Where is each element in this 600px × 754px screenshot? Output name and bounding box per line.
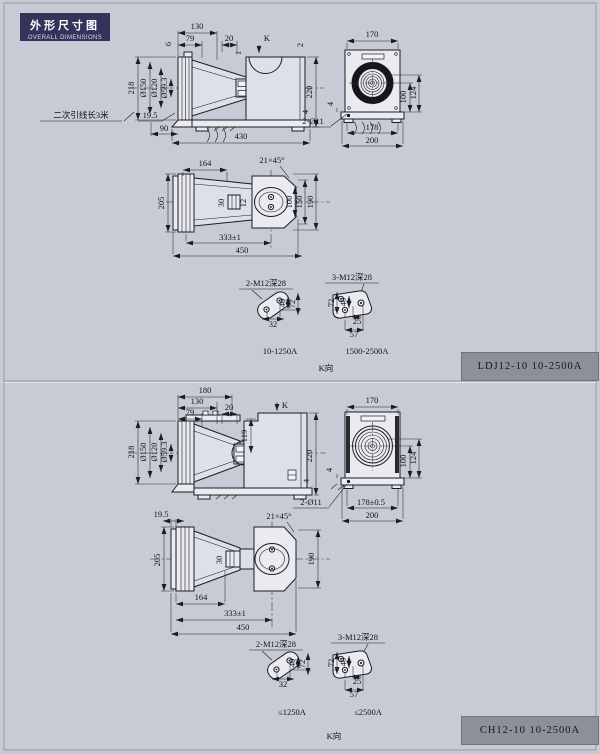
dim-dia59: Ø59.3 bbox=[159, 77, 169, 98]
dim-200: 200 bbox=[366, 510, 379, 520]
dim-150: 150 bbox=[294, 196, 304, 209]
panel1: 130 79 6 20 K 2 1 218 Ø150 Ø120 Ø59.3 22… bbox=[40, 21, 422, 373]
dim-57: 57 bbox=[350, 689, 359, 699]
dim-190: 190 bbox=[305, 196, 315, 209]
dim-124: 124 bbox=[408, 451, 418, 465]
chamfer-note: 21×45° bbox=[266, 511, 291, 521]
dim-25: 25 bbox=[353, 316, 362, 326]
dim-218: 218 bbox=[126, 446, 136, 459]
dim-4: 4 bbox=[325, 101, 335, 106]
dim-25: 25 bbox=[353, 676, 362, 686]
dim-90: 90 bbox=[160, 123, 169, 133]
k-view-caption: K向 bbox=[319, 363, 334, 373]
dim-19-5: 19.5 bbox=[154, 509, 169, 519]
dim-180: 180 bbox=[199, 385, 212, 395]
dim-72: 72 bbox=[326, 299, 336, 308]
dim-dia150: Ø150 bbox=[138, 443, 148, 462]
dim-178: 178 bbox=[366, 122, 379, 132]
dim-220: 220 bbox=[304, 450, 314, 463]
bolt-detail-title: 2-M12深28 bbox=[256, 639, 296, 649]
dim-57: 57 bbox=[350, 329, 359, 339]
bolt-detail-title: 3-M12深28 bbox=[338, 632, 378, 642]
dim-218: 218 bbox=[126, 82, 136, 95]
dim-30: 30 bbox=[216, 199, 226, 208]
k-view-caption: K向 bbox=[327, 731, 342, 741]
dim-450: 450 bbox=[237, 622, 250, 632]
dim-100: 100 bbox=[284, 196, 294, 209]
range-label: ≤2500A bbox=[354, 707, 383, 717]
dim-6: 6 bbox=[163, 42, 173, 46]
dim-2: 2 bbox=[295, 43, 305, 47]
model-label-ldj12: LDJ12-10 10-2500A bbox=[461, 352, 599, 381]
side-rail bbox=[346, 416, 350, 473]
panel2: 180 130 79 20 K 119 218 Ø150 Ø120 Ø59.3 … bbox=[126, 385, 422, 741]
k-direction-label: K bbox=[264, 33, 271, 43]
model-label-ch12: CH12-10 10-2500A bbox=[461, 716, 599, 745]
dim-72: 72 bbox=[297, 660, 307, 669]
dim-164: 164 bbox=[199, 158, 213, 168]
p2-bolt-detail-2xM12: 2-M12深28 40 72 32 ≤1250A bbox=[249, 639, 311, 717]
dim-333: 333±1 bbox=[224, 608, 246, 618]
p1-k-view: 170 100 124 4 2-Ø11 178 200 bbox=[295, 29, 422, 146]
dim-dia150: Ø150 bbox=[138, 79, 148, 98]
chamfer-note: 21×45° bbox=[259, 155, 284, 165]
dim-dia59: Ø59.3 bbox=[159, 441, 169, 462]
dim-30: 30 bbox=[214, 556, 224, 565]
range-label: 10-1250A bbox=[263, 346, 298, 356]
drawing-sheet: 130 79 6 20 K 2 1 218 Ø150 Ø120 Ø59.3 22… bbox=[0, 0, 600, 754]
dim-72: 72 bbox=[326, 659, 336, 668]
p1-bolt-detail-3xM12: 3-M12深28 72 40 25 57 1500-2500A bbox=[325, 272, 389, 356]
dim-333: 333±1 bbox=[219, 232, 241, 242]
dim-4: 4 bbox=[324, 467, 334, 472]
mounting-hole bbox=[347, 480, 350, 483]
dim-190: 190 bbox=[306, 553, 316, 566]
p1-bolt-detail-2xM12: 2-M12深28 40 72 32 10-1250A bbox=[239, 278, 301, 356]
dim-430: 430 bbox=[235, 131, 248, 141]
bolt-detail-title: 2-M12深28 bbox=[246, 278, 286, 288]
dim-40: 40 bbox=[287, 659, 297, 668]
dim-12: 12 bbox=[238, 199, 248, 208]
title-chinese: 外形尺寸图 bbox=[20, 17, 110, 33]
dim-dia120: Ø120 bbox=[149, 443, 159, 462]
p2-bolt-detail-3xM12: 3-M12深28 72 40 25 57 ≤2500A bbox=[326, 632, 385, 717]
secondary-lead-note: 二次引线长3米 bbox=[53, 110, 109, 120]
dim-178: 178±0.5 bbox=[357, 497, 385, 507]
dim-100: 100 bbox=[398, 91, 408, 104]
dim-220: 220 bbox=[304, 86, 314, 99]
dim-1: 1 bbox=[233, 51, 243, 55]
dim-79: 79 bbox=[186, 407, 195, 417]
title-block: 外形尺寸图 OVERALL DIMENSIONS bbox=[20, 13, 110, 41]
range-label: 1500-2500A bbox=[346, 346, 390, 356]
range-label: ≤1250A bbox=[278, 707, 307, 717]
dim-450: 450 bbox=[236, 245, 249, 255]
dim-79: 79 bbox=[186, 33, 195, 43]
dim-130: 130 bbox=[191, 396, 204, 406]
dim-200: 200 bbox=[366, 135, 379, 145]
p2-front-view: 180 130 79 20 K 119 218 Ø150 Ø120 Ø59.3 … bbox=[126, 385, 326, 499]
dim-72: 72 bbox=[287, 300, 297, 309]
mounting-hole bbox=[347, 114, 350, 117]
dim-40: 40 bbox=[338, 658, 348, 667]
dim-164: 164 bbox=[195, 592, 209, 602]
dim-40: 40 bbox=[277, 299, 287, 308]
dim-170: 170 bbox=[366, 395, 379, 405]
k-direction-label: K bbox=[282, 400, 289, 410]
dim-119: 119 bbox=[239, 430, 249, 442]
dim-20: 20 bbox=[225, 402, 234, 412]
mounting-hole-label: 2-Ø11 bbox=[302, 116, 323, 126]
dim-19-5: 19.5 bbox=[143, 110, 158, 120]
dim-170: 170 bbox=[366, 29, 379, 39]
dim-130: 130 bbox=[191, 21, 204, 31]
dim-32: 32 bbox=[269, 319, 278, 329]
title-english: OVERALL DIMENSIONS bbox=[20, 35, 110, 41]
p2-plan-view: 19.5 21×45° 205 30 190 164 333±1 450 bbox=[150, 509, 330, 634]
bolt-detail-title: 3-M12深28 bbox=[332, 272, 372, 282]
dim-20: 20 bbox=[225, 33, 234, 43]
dim-dia120: Ø120 bbox=[149, 79, 159, 98]
dim-100: 100 bbox=[398, 455, 408, 468]
dim-32: 32 bbox=[279, 679, 288, 689]
dim-205: 205 bbox=[156, 197, 166, 210]
p1-plan-view: 164 21×45° 205 30 12 100 150 190 333±1 4… bbox=[156, 155, 330, 256]
dim-205: 205 bbox=[152, 554, 162, 567]
dim-124: 124 bbox=[408, 86, 418, 100]
mounting-hole-label: 2-Ø11 bbox=[300, 497, 321, 507]
dim-40: 40 bbox=[338, 298, 348, 307]
